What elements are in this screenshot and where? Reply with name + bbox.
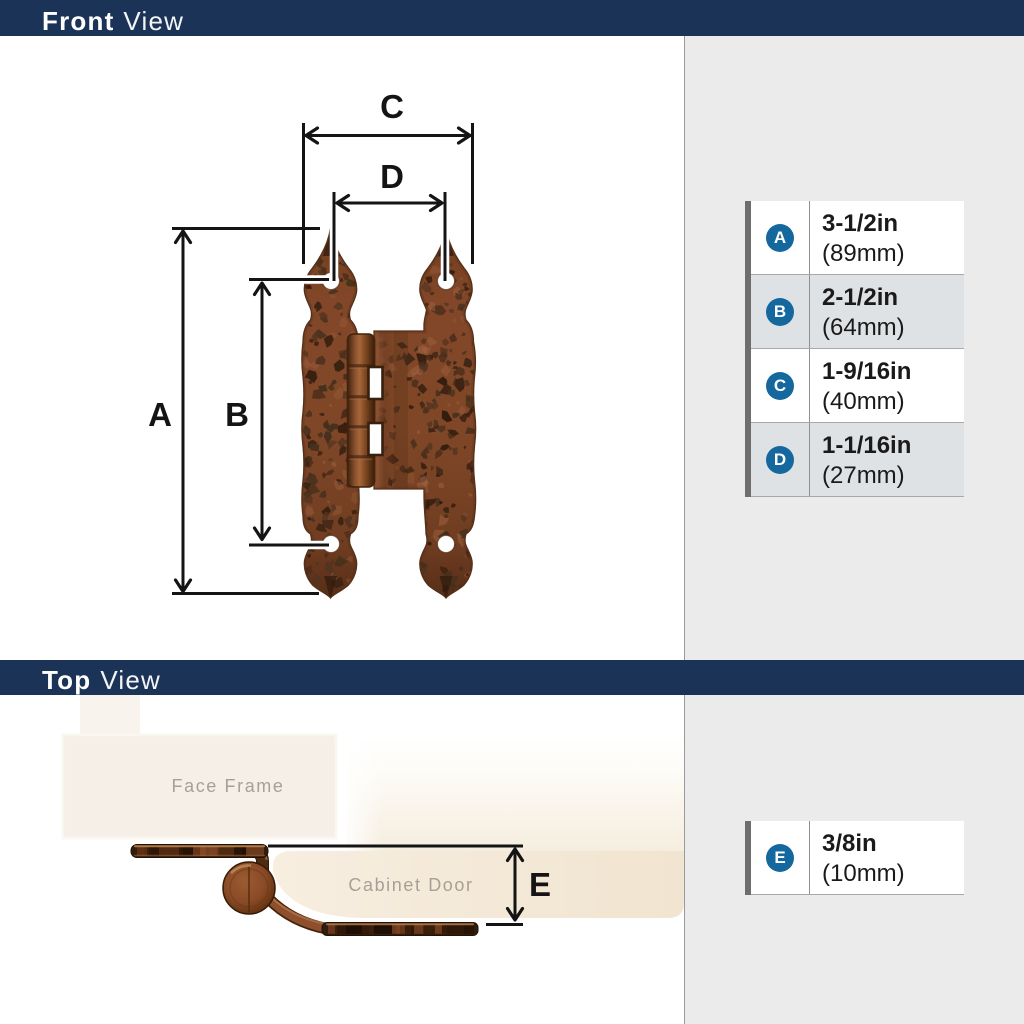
svg-text:C: C [380,88,404,125]
svg-text:D: D [380,158,404,195]
svg-text:E: E [529,866,551,903]
svg-text:Face Frame: Face Frame [171,776,284,796]
svg-text:A: A [148,396,172,433]
svg-text:B: B [225,396,249,433]
svg-text:Cabinet Door: Cabinet Door [348,875,473,895]
